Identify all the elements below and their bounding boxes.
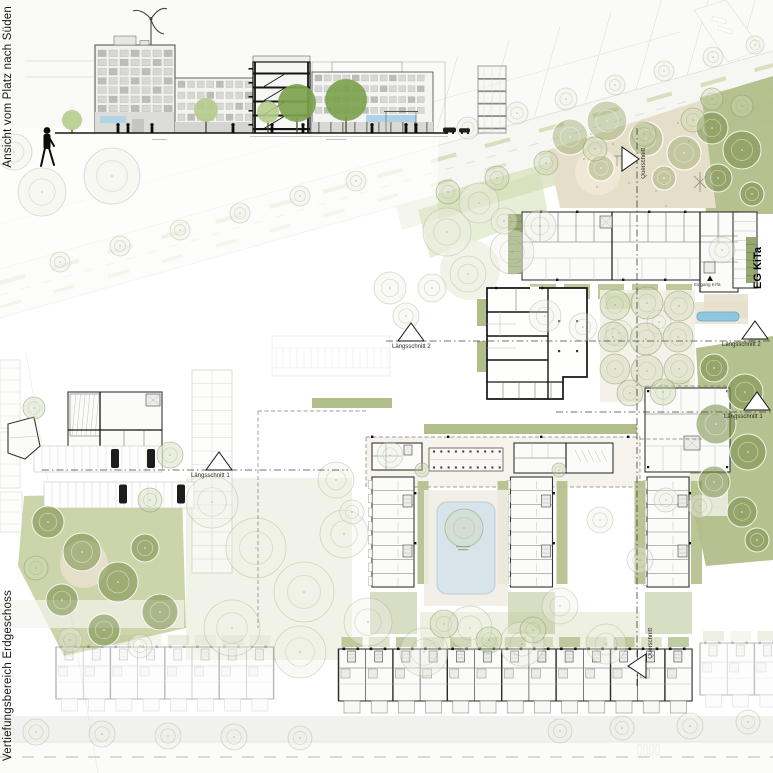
- sheet-title-elevation: Ansicht vom Platz nach Süden: [3, 6, 15, 168]
- residential-slabs: [368, 477, 702, 587]
- site-plan-drawing: [0, 0, 773, 773]
- courtyard-pond: [424, 490, 508, 606]
- section-label-laengsschnitt-1-right: Längsschnitt 1: [724, 414, 763, 420]
- architectural-site-plan-sheet: Ansicht vom Platz nach Süden Vertiefungs…: [0, 0, 773, 773]
- label-eg-kita: EG KiTa: [753, 247, 764, 289]
- section-label-querschnitt-top: Querschnitt: [641, 148, 647, 179]
- section-label-querschnitt-bottom: Querschnitt: [648, 628, 654, 659]
- sheet-title-ground-floor: Vertiefungsbereich Erdgeschoss: [3, 590, 15, 761]
- section-label-laengsschnitt-1-left: Längsschnitt 1: [191, 473, 230, 479]
- section-label-laengsschnitt-2-left: Längsschnitt 2: [392, 344, 431, 350]
- section-label-laengsschnitt-2-right: Längsschnitt 2: [722, 342, 761, 348]
- label-eingang-kita: Eingang KiTa: [694, 283, 721, 288]
